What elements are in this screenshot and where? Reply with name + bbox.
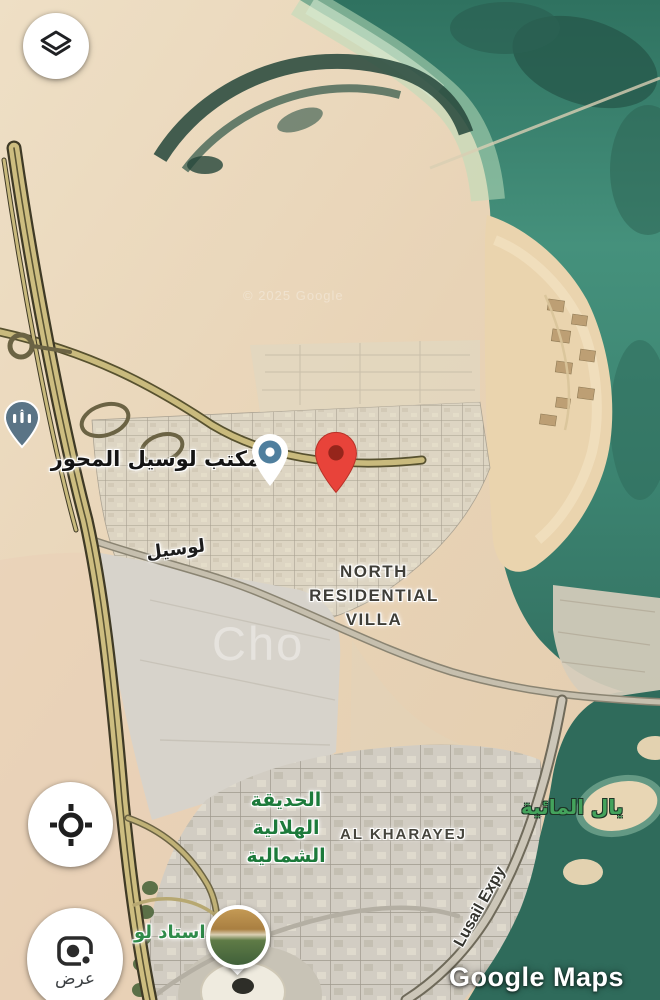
park-label-line: الشمالية	[240, 842, 332, 870]
poi-label-waterfront[interactable]: يال المائية	[521, 795, 623, 819]
area-label-north-residential-villa[interactable]: NORTH RESIDENTIAL VILLA	[290, 560, 458, 632]
street-view-button[interactable]: عرض	[27, 908, 123, 1000]
destination-pin-icon	[313, 430, 359, 496]
map-copyright-watermark: © 2025 Google	[243, 288, 344, 303]
layers-button[interactable]	[23, 13, 89, 79]
photo-thumbnail-image	[206, 905, 270, 969]
google-maps-attribution: Google Maps	[449, 962, 624, 993]
poi-pin[interactable]	[249, 432, 291, 495]
area-label-al-kharayej[interactable]: AL KHARAYEJ	[340, 826, 467, 843]
area-label-line: VILLA	[290, 608, 458, 632]
street-view-button-label: عرض	[55, 969, 95, 989]
area-label-line: RESIDENTIAL	[290, 584, 458, 608]
camera-icon	[55, 934, 95, 968]
crosshair-icon	[48, 802, 94, 848]
mosque-marker[interactable]	[2, 399, 42, 456]
street-view-photo-thumbnail[interactable]	[206, 905, 270, 969]
park-label-line: الحديقة	[240, 786, 332, 814]
mosque-icon	[2, 399, 42, 451]
my-location-button[interactable]	[28, 782, 113, 867]
area-label-line: NORTH	[290, 560, 458, 584]
layers-icon	[39, 29, 73, 63]
poi-label-lusail-stadium[interactable]: استاد لو	[134, 922, 206, 943]
park-label-line: الهلالية	[240, 814, 332, 842]
poi-pin-icon	[249, 432, 291, 490]
poi-label-northern-crescent-park[interactable]: الحديقة الهلالية الشمالية	[240, 786, 332, 870]
google-maps-screen: © 2025 Google Cho مكتب لوسيل المحور لوسي…	[0, 0, 660, 1000]
poi-label-lusail-office[interactable]: مكتب لوسيل المحور	[60, 447, 260, 471]
destination-pin[interactable]	[313, 430, 359, 501]
